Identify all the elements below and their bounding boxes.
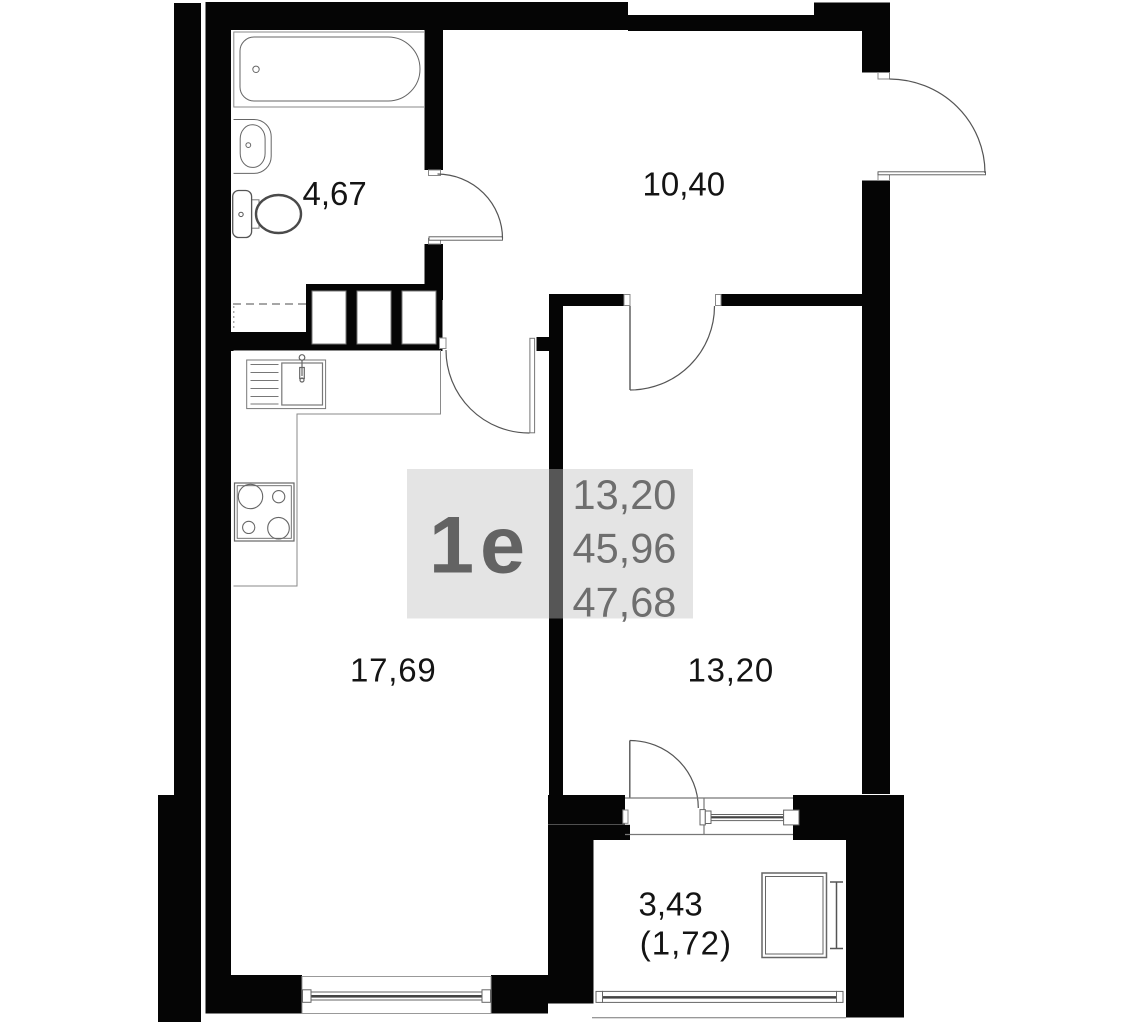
svg-text:47,68: 47,68 xyxy=(573,579,677,626)
svg-text:1e: 1e xyxy=(429,501,531,591)
svg-text:10,40: 10,40 xyxy=(643,165,726,202)
svg-text:45,96: 45,96 xyxy=(573,525,677,572)
svg-text:3,43: 3,43 xyxy=(639,885,703,922)
svg-text:17,69: 17,69 xyxy=(350,651,437,688)
svg-text:13,20: 13,20 xyxy=(573,471,677,518)
svg-text:4,67: 4,67 xyxy=(303,175,367,212)
svg-text:13,20: 13,20 xyxy=(688,651,775,688)
svg-text:(1,72): (1,72) xyxy=(640,924,732,961)
